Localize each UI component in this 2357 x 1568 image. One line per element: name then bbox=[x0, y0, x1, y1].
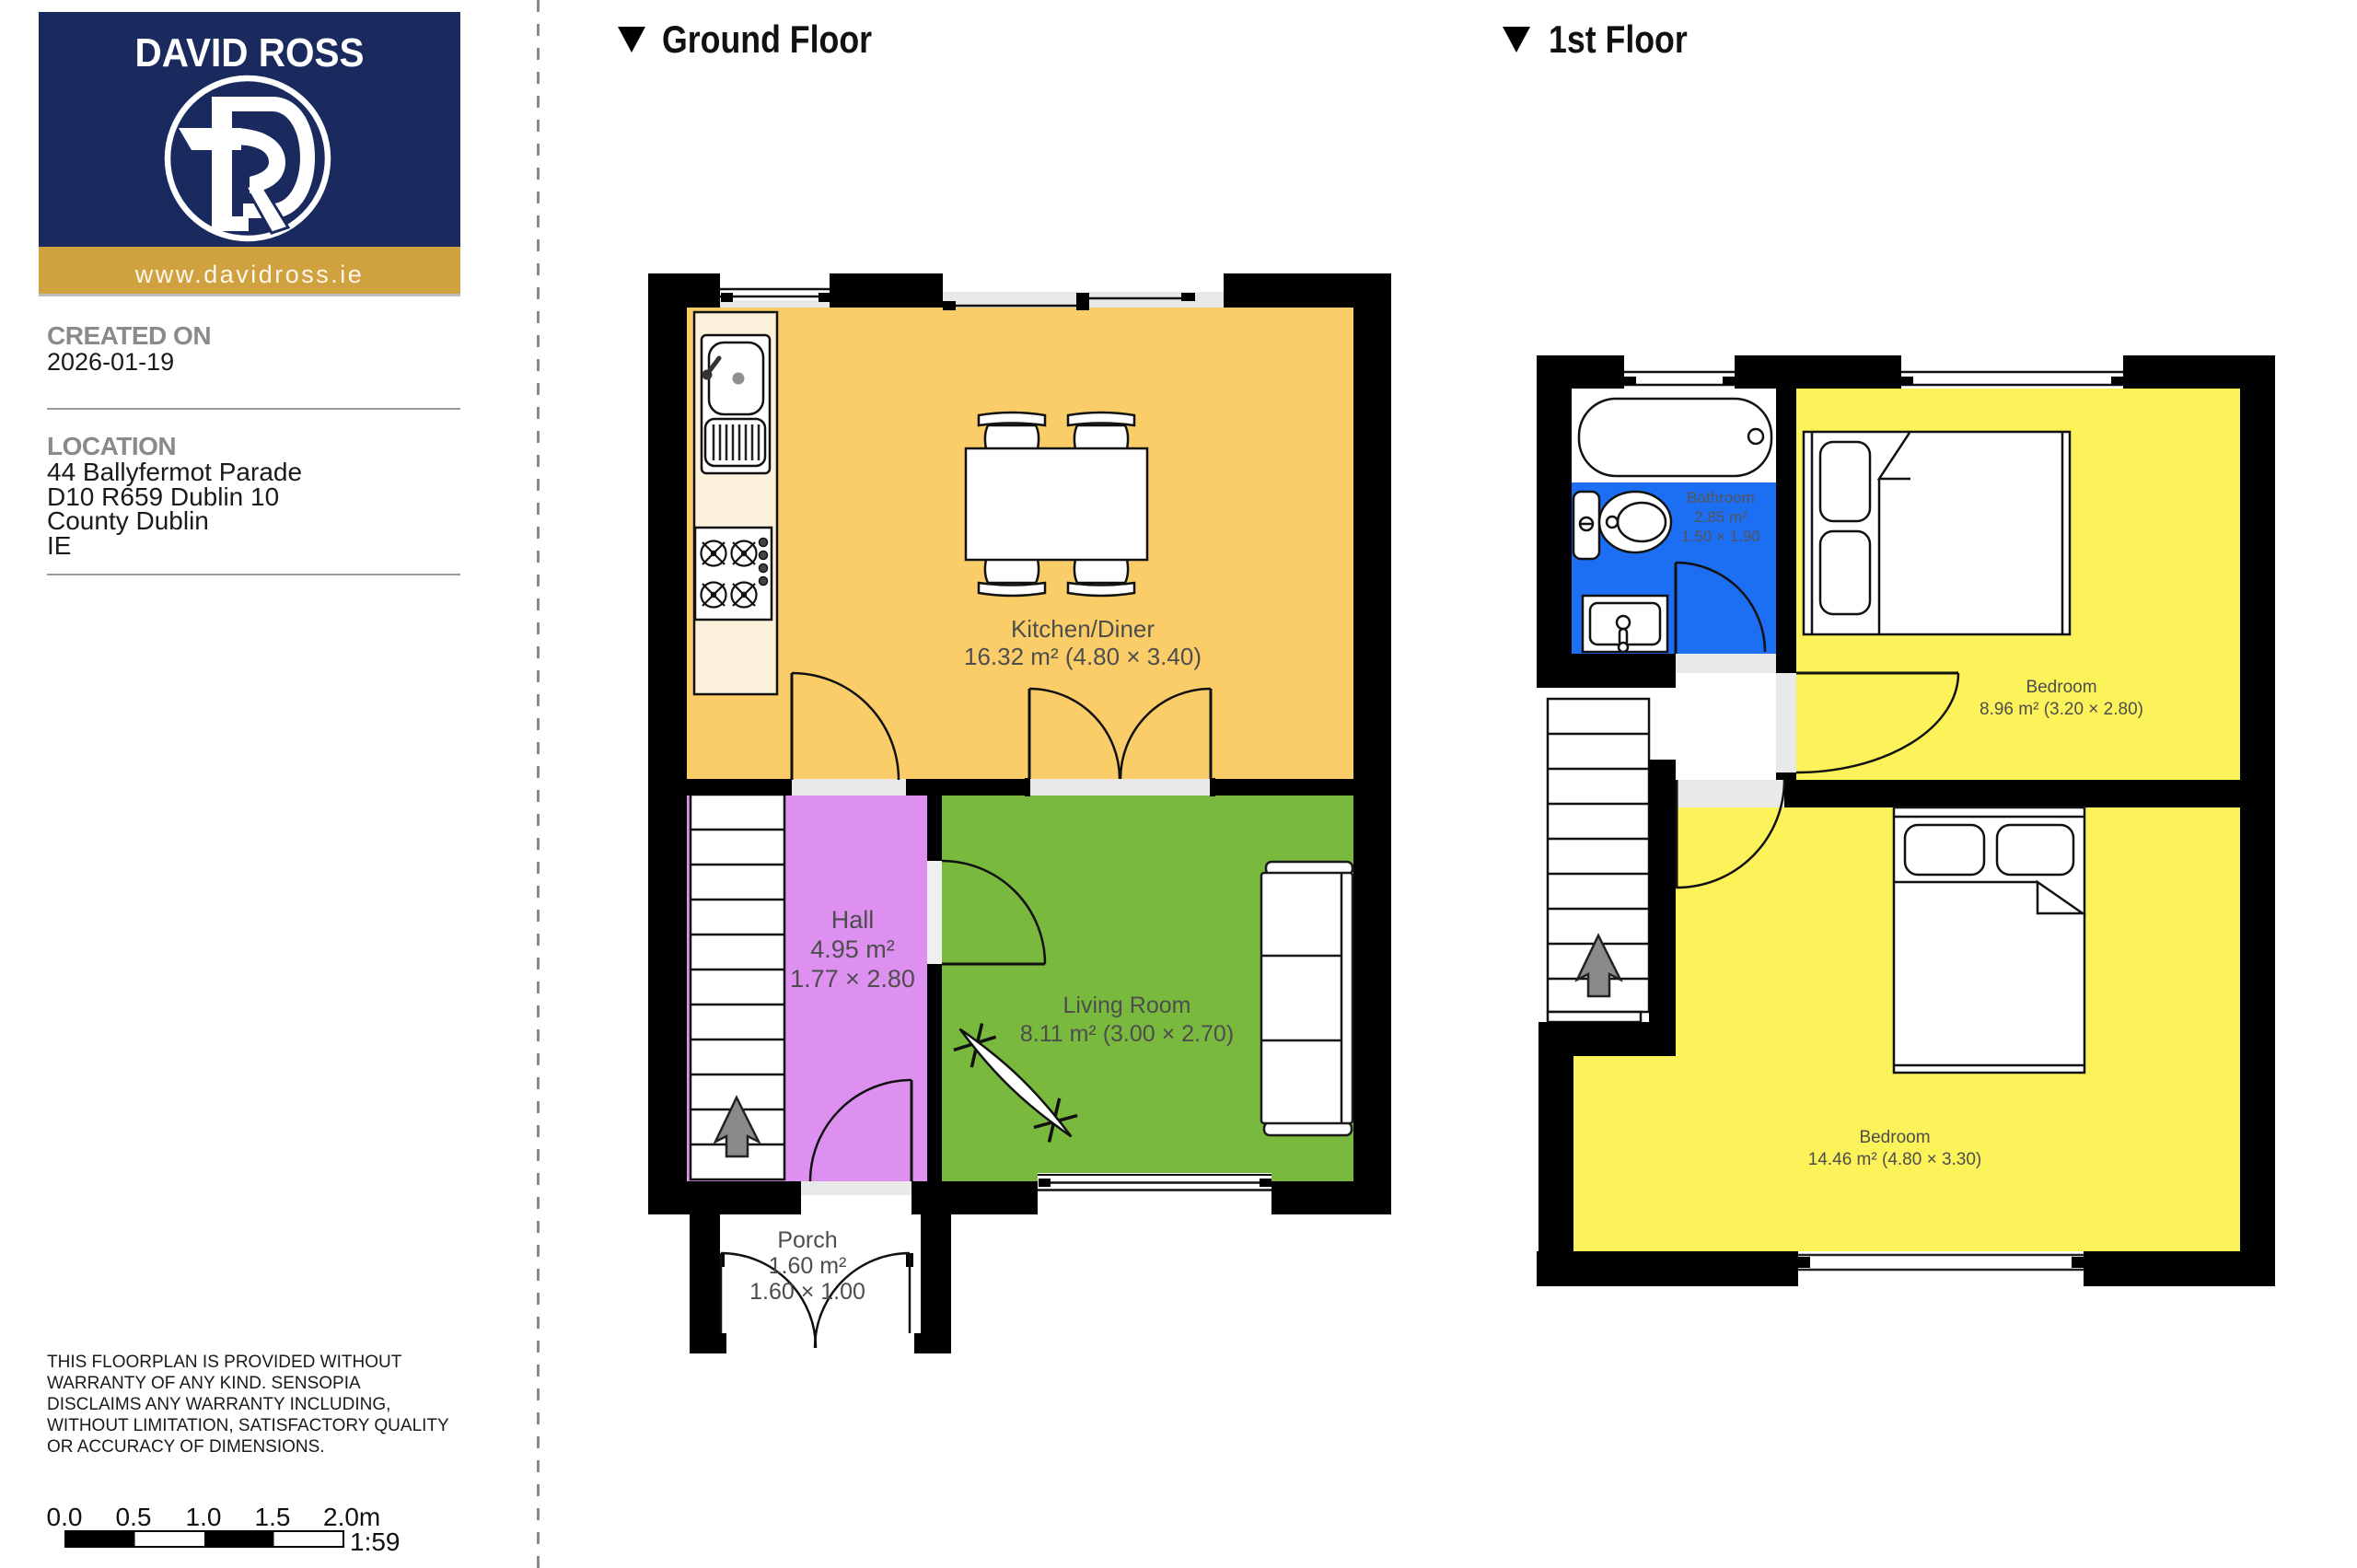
svg-text:8.11 m² (3.00 × 2.70): 8.11 m² (3.00 × 2.70) bbox=[1020, 1021, 1234, 1047]
svg-text:Bathroom: Bathroom bbox=[1687, 489, 1755, 506]
svg-text:2.85 m²: 2.85 m² bbox=[1694, 508, 1747, 526]
svg-text:1.60 m²: 1.60 m² bbox=[769, 1253, 847, 1279]
svg-text:Bedroom: Bedroom bbox=[1859, 1128, 1930, 1147]
svg-text:1.77 × 2.80: 1.77 × 2.80 bbox=[790, 965, 915, 993]
svg-text:4.95 m²: 4.95 m² bbox=[810, 935, 895, 963]
svg-text:Living Room: Living Room bbox=[1063, 993, 1191, 1018]
svg-text:8.96 m² (3.20 × 2.80): 8.96 m² (3.20 × 2.80) bbox=[1980, 700, 2143, 719]
svg-text:Porch: Porch bbox=[777, 1227, 837, 1253]
svg-text:1.60 × 1.00: 1.60 × 1.00 bbox=[749, 1279, 865, 1305]
svg-text:Kitchen/Diner: Kitchen/Diner bbox=[1011, 615, 1155, 643]
svg-text:1.50 × 1.90: 1.50 × 1.90 bbox=[1681, 528, 1760, 545]
svg-text:14.46 m² (4.80 × 3.30): 14.46 m² (4.80 × 3.30) bbox=[1808, 1150, 1982, 1169]
svg-text:16.32 m² (4.80 × 3.40): 16.32 m² (4.80 × 3.40) bbox=[964, 643, 1202, 670]
svg-text:Hall: Hall bbox=[831, 906, 875, 934]
svg-text:Bedroom: Bedroom bbox=[2026, 678, 2096, 697]
